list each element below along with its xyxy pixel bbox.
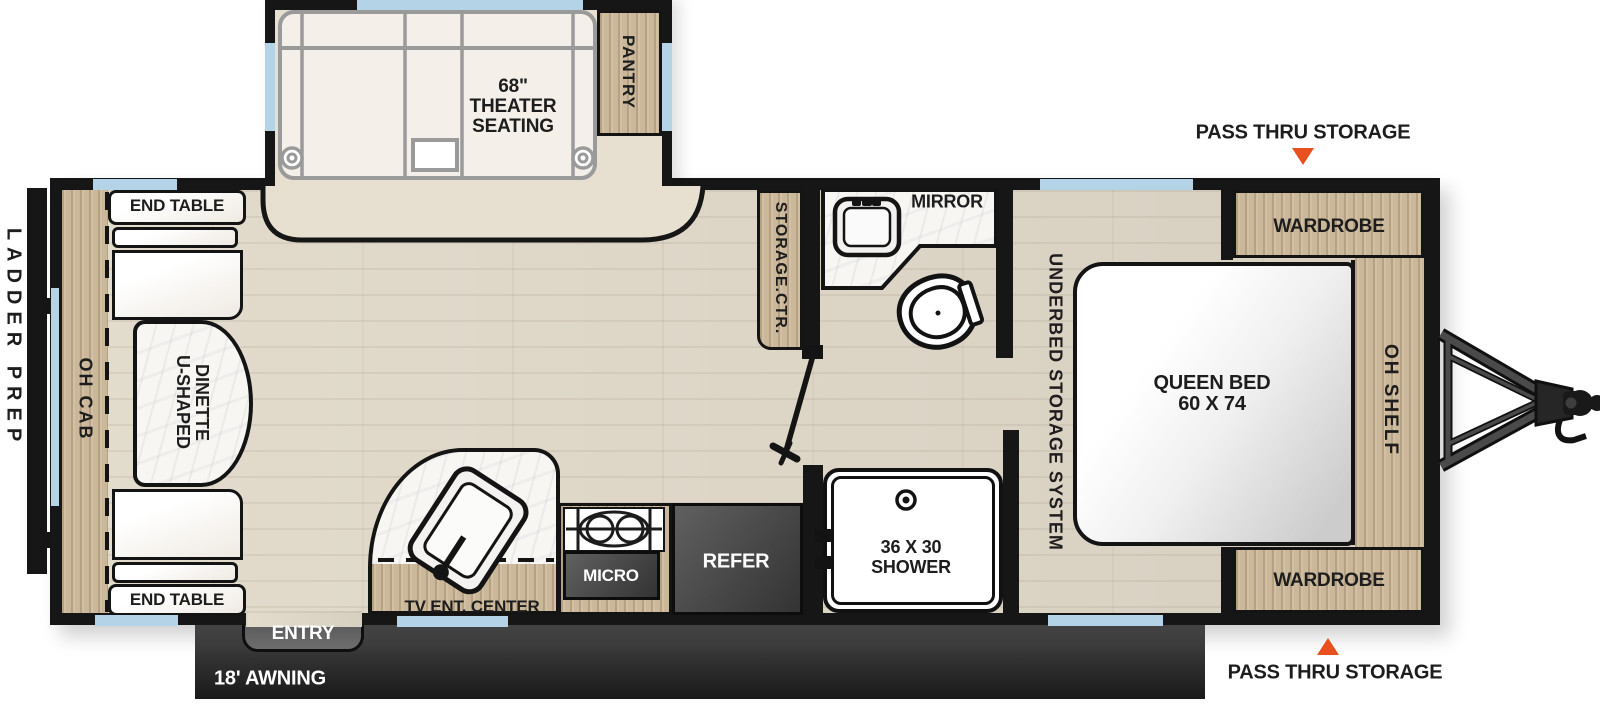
ladder-prep-label: LADDER PREP bbox=[2, 228, 25, 448]
storage-center-label: STORAGE.CTR. bbox=[771, 202, 789, 335]
theater-seating-label: 68" THEATER SEATING bbox=[470, 77, 557, 137]
window bbox=[397, 616, 508, 627]
wardrobe-top-wall-stub bbox=[1221, 190, 1233, 260]
wardrobe-bottom-wall-stub bbox=[1221, 547, 1233, 613]
queen-bed-label-line1: QUEEN BED bbox=[1153, 373, 1270, 394]
pass-thru-arrow-bottom-icon bbox=[1317, 638, 1339, 655]
pass-thru-arrow-top-icon bbox=[1292, 148, 1314, 165]
entry-label: ENTRY bbox=[272, 623, 335, 645]
window bbox=[1040, 179, 1193, 190]
ladder-prep-bar bbox=[27, 188, 47, 574]
bathroom-wall-left bbox=[803, 190, 820, 358]
dinette-label-line2: DINETTE bbox=[192, 355, 211, 449]
bedroom-wall bbox=[1003, 430, 1019, 613]
dinette-label-line1: U-SHAPED bbox=[173, 355, 192, 449]
bed-foot-dash-line bbox=[1351, 260, 1355, 545]
theater-label-line1: 68" bbox=[470, 77, 557, 97]
dinette-bench-bottom bbox=[112, 489, 243, 560]
queen-bed-label-line2: 60 X 74 bbox=[1153, 394, 1270, 415]
shower-label-line2: SHOWER bbox=[871, 557, 951, 577]
end-table-bottom-label: END TABLE bbox=[130, 590, 224, 610]
cooktop bbox=[563, 507, 665, 552]
dinette-label: U-SHAPED DINETTE bbox=[173, 355, 211, 449]
overhead-cabinet-dash-line bbox=[105, 192, 109, 612]
underbed-storage-label: UNDERBED STORAGE SYSTEM bbox=[1045, 253, 1066, 551]
bathroom-wall-right bbox=[996, 190, 1013, 358]
window bbox=[1048, 615, 1163, 626]
end-table-top-label: END TABLE bbox=[130, 196, 224, 216]
refer-label: REFER bbox=[703, 551, 770, 574]
hitch-icon bbox=[1441, 334, 1600, 466]
queen-bed-label: QUEEN BED 60 X 74 bbox=[1153, 373, 1270, 415]
mirror-label: MIRROR bbox=[911, 192, 983, 213]
shower-label: 36 X 30 SHOWER bbox=[871, 537, 951, 577]
theater-label-line3: SEATING bbox=[470, 117, 557, 137]
wardrobe-top-label: WARDROBE bbox=[1273, 216, 1384, 238]
theater-label-line2: THEATER bbox=[470, 97, 557, 117]
micro-label: MICRO bbox=[583, 566, 639, 586]
pass-thru-storage-top-label: PASS THRU STORAGE bbox=[1196, 122, 1411, 145]
awning-label: 18' AWNING bbox=[214, 668, 326, 691]
window-rear bbox=[51, 288, 59, 506]
window-slideout-top bbox=[357, 0, 583, 10]
pantry-label: PANTRY bbox=[618, 35, 638, 109]
tv-ent-center-label: TV ENT. CENTER bbox=[404, 597, 539, 617]
oh-cab-label: OH CAB bbox=[75, 358, 96, 441]
window-slideout-left bbox=[265, 43, 275, 131]
dinette-seatback-bottom bbox=[112, 562, 238, 583]
dinette-seatback-top bbox=[112, 227, 238, 248]
wardrobe-bottom-label: WARDROBE bbox=[1273, 570, 1384, 592]
window bbox=[95, 615, 178, 626]
pass-thru-storage-bottom-label: PASS THRU STORAGE bbox=[1228, 662, 1443, 685]
oh-shelf-label: OH SHELF bbox=[1379, 344, 1401, 456]
window-slideout-right bbox=[662, 43, 672, 131]
shower-wall-left bbox=[803, 465, 823, 613]
dinette-bench-top bbox=[112, 250, 243, 320]
counter-dash-line bbox=[378, 558, 554, 562]
shower-label-line1: 36 X 30 bbox=[871, 537, 951, 557]
floorplan-canvas: PASS THRU STORAGE PASS THRU STORAGE LADD… bbox=[0, 0, 1600, 706]
window bbox=[93, 179, 177, 190]
